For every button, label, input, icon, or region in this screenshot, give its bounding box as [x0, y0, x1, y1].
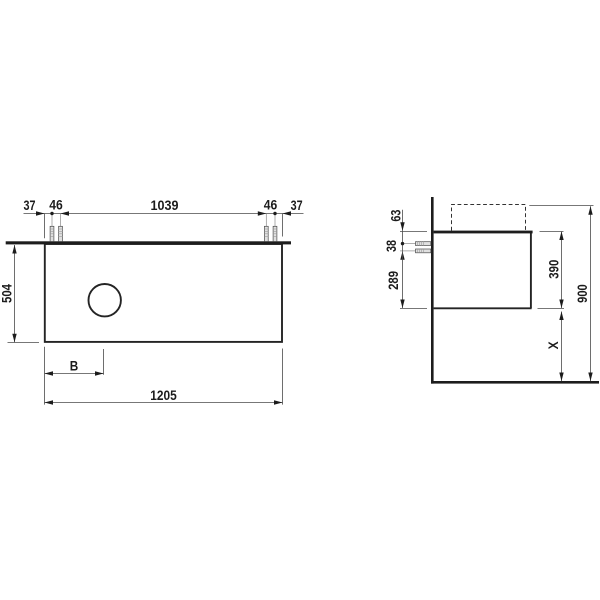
svg-text:1205: 1205: [150, 388, 177, 403]
svg-text:37: 37: [291, 198, 303, 213]
svg-text:38: 38: [384, 240, 399, 252]
svg-text:289: 289: [386, 271, 401, 290]
svg-text:390: 390: [547, 260, 562, 279]
svg-text:63: 63: [388, 209, 403, 221]
svg-text:37: 37: [24, 198, 36, 213]
svg-text:46: 46: [49, 198, 63, 213]
svg-text:504: 504: [0, 284, 15, 303]
svg-text:900: 900: [575, 284, 590, 303]
svg-text:X: X: [546, 341, 561, 349]
svg-text:46: 46: [264, 198, 278, 213]
svg-text:B: B: [70, 358, 79, 373]
svg-text:1039: 1039: [151, 198, 179, 213]
